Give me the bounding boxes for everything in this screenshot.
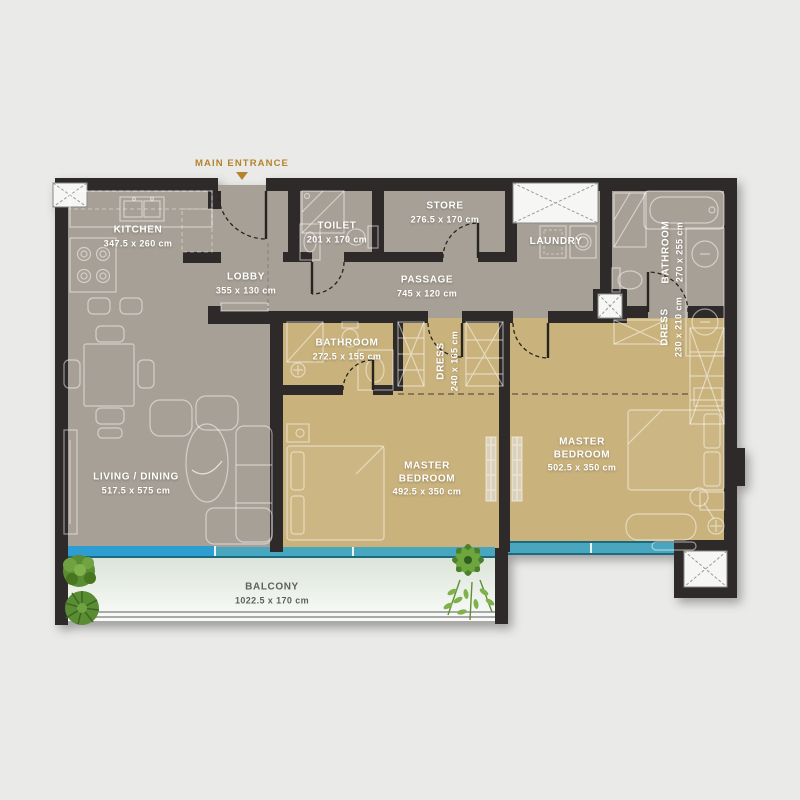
floor-plan-drawing [0,0,800,800]
floor-plan-canvas: MAIN ENTRANCE KITCHEN 347.5 x 260 cm LOB… [0,0,800,800]
balcony-railing [62,611,508,623]
main-entrance-label: MAIN ENTRANCE [195,158,289,169]
structure [53,178,745,625]
entrance-arrow-icon [236,172,248,180]
